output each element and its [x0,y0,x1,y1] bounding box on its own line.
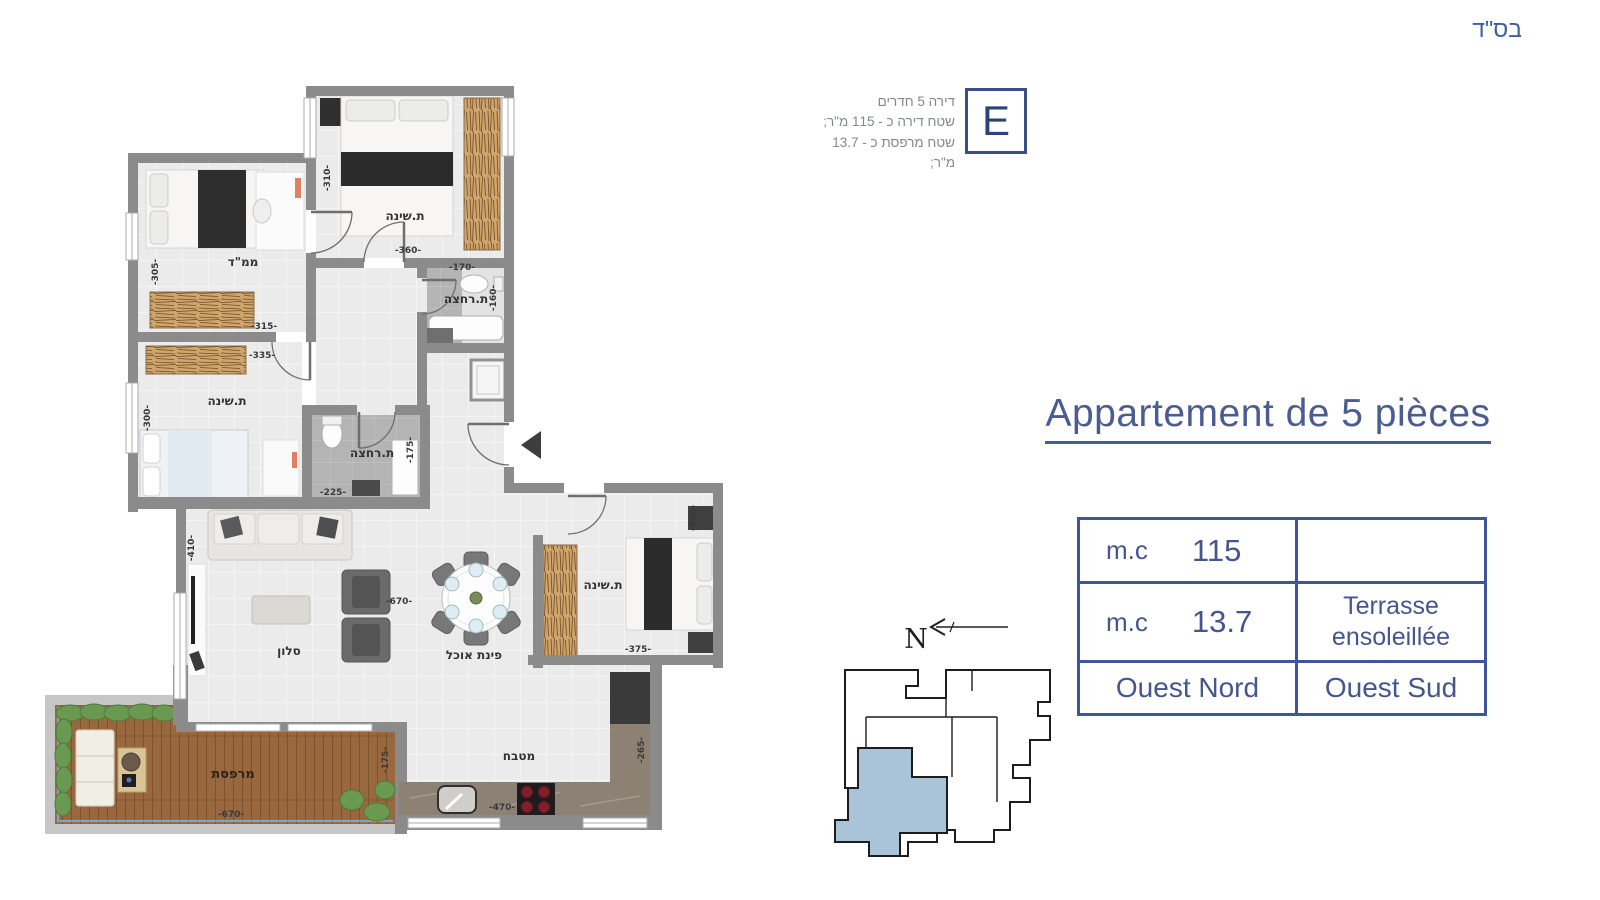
dim-top-bedroom-w: -360- [395,246,422,256]
spec-empty-cell [1298,520,1484,584]
unit-info-line1: דירה 5 חדרים [820,92,955,112]
terrace-dim-depth: -175- [381,747,391,774]
dim-kitchen-w: -470- [489,803,516,813]
spec-orientation-1: Ouest Nord [1080,663,1298,713]
page-title: Appartement de 5 pièces [1018,392,1518,444]
floor-plan: מרפסת -670- -175- [30,75,740,845]
dim-bedroom3-h: -340- [689,505,699,532]
coffee-table [252,596,310,624]
sofa-living [208,510,352,560]
closet-bedroom2 [146,346,246,374]
dresser-bedroom2 [263,440,299,496]
dim-top-bedroom-h: -310- [323,165,333,192]
spec-area-apartment: m.c 115 [1080,520,1298,584]
spec-area-terrace-value: 13.7 [1192,604,1252,640]
spec-orientation-2: Ouest Sud [1298,663,1484,713]
entrance-arrow-icon [521,431,541,459]
terrace-frame-left [45,695,55,834]
spec-area-terrace-unit: m.c [1106,607,1148,638]
dining-set [430,552,522,645]
unit-letter-badge: E [965,88,1027,154]
page-title-text: Appartement de 5 pièces [1045,392,1490,444]
window [126,213,138,260]
label-bedroom2: ת.שינה [207,394,246,408]
dim-mamad-w: -315- [251,322,278,332]
spec-area-apartment-unit: m.c [1106,535,1148,566]
dim-bedroom3-w: -375- [625,645,652,655]
dim-bedroom2-h: -300- [143,405,153,432]
dim-mamad-h: -305- [151,259,161,286]
tv-unit [188,564,206,676]
spec-orientation-2-text: Ouest Sud [1325,672,1457,704]
dim-bedroom2-w: -335- [249,351,276,361]
desk-mamad [253,172,304,250]
label-kitchen: מטבח [503,749,535,763]
bsd-text: בס"ד [1472,16,1522,43]
building-footprint-diagram: N [810,595,1080,865]
dim-bathroom2-h: -175- [406,437,416,464]
terrace-frame-top [45,695,176,705]
label-salon: סלון [277,644,301,658]
closet-top-bedroom [464,98,500,250]
spec-terrace-type: Terrasse ensoleillée [1298,584,1484,663]
closet-bedroom3 [543,545,577,663]
spec-terrace-type-line2: ensoleillée [1332,622,1450,653]
label-dining: פינת אוכל [446,648,502,662]
north-label: N [904,624,928,655]
terrace-frame-bottom [45,824,407,834]
dim-bathroom1-w: -170- [449,263,476,273]
spec-orientation-1-text: Ouest Nord [1116,672,1259,704]
dim-salon-w: -670- [386,597,413,607]
dim-bathroom1-h: -160- [489,285,499,312]
label-top-bedroom: ת.שינה [385,209,424,223]
unit-info-line3: שטח מרפסת כ - 13.7 מ"ר; [820,133,955,174]
footprint-outline [835,670,1050,856]
unit-info: דירה 5 חדרים שטח דירה כ - 115 מ"ר; שטח מ… [820,92,955,173]
closet-mamad [150,292,254,328]
unit-info-line2: שטח דירה כ - 115 מ"ר; [820,112,955,132]
bed-mamad [146,170,264,248]
spec-area-terrace: m.c 13.7 [1080,584,1298,663]
window [502,98,514,156]
dim-salon-h: -410- [187,535,197,562]
terrace-sofa [76,730,114,806]
label-bathroom1: ת.רחצה [444,292,488,306]
bed-bedroom2 [140,430,248,500]
window [304,98,316,158]
label-bathroom2: ת.רחצה [350,446,394,460]
spec-area-apartment-value: 115 [1192,533,1241,569]
north-compass: N [904,619,1008,655]
label-mamad: ממ"ד [228,255,259,269]
terrace-dim-width: -670- [218,810,245,820]
label-bedroom3: ת.שינה [583,578,622,592]
window [126,383,138,453]
spec-terrace-type-line1: Terrasse [1343,591,1439,622]
shaft-box [471,360,505,400]
terrace-coffee-table [118,748,146,792]
dim-kitchen-h: -265- [637,737,647,764]
window [174,593,186,699]
spec-table: m.c 115 m.c 13.7 Terrasse ensoleillée Ou… [1077,517,1487,716]
unit-letter: E [982,97,1010,145]
terrace-label: מרפסת [211,767,255,782]
dim-bathroom2-w: -225- [320,488,347,498]
